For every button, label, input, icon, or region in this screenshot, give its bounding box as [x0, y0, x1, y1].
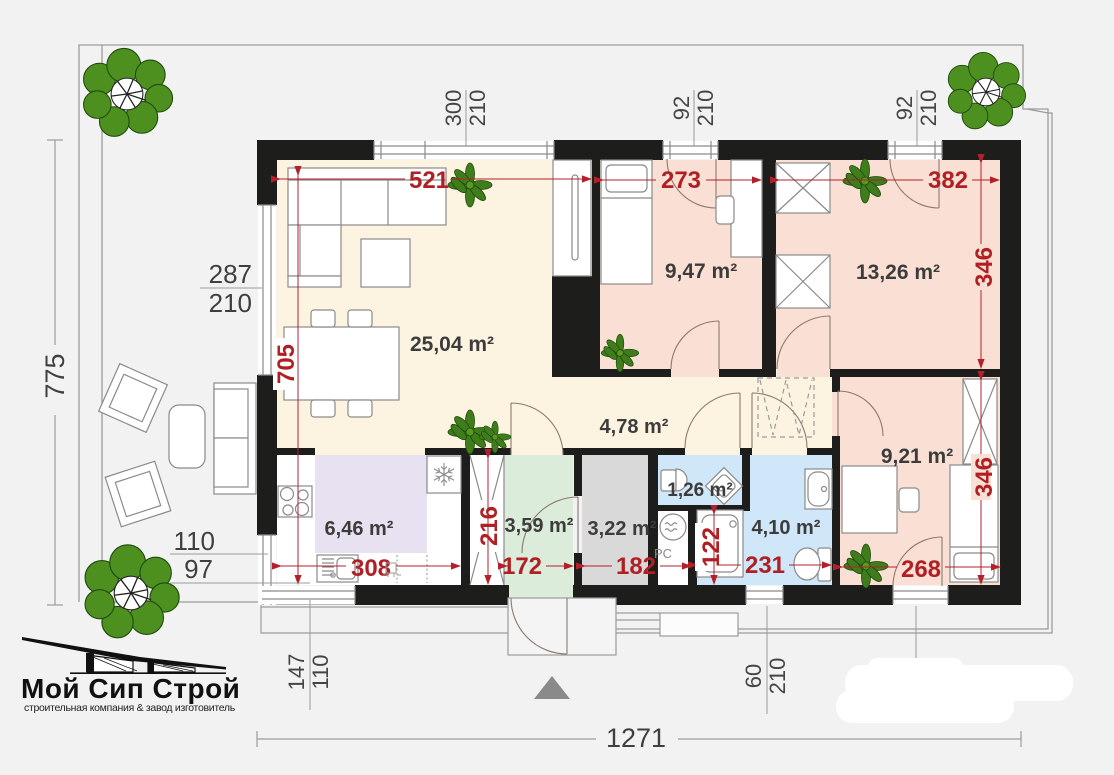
svg-text:PC: PC	[654, 546, 672, 561]
svg-text:110: 110	[174, 526, 215, 556]
svg-text:122: 122	[698, 527, 725, 567]
svg-text:25,04 m²: 25,04 m²	[410, 333, 494, 356]
svg-text:1271: 1271	[606, 723, 666, 753]
svg-text:210: 210	[465, 90, 490, 127]
svg-text:268: 268	[901, 556, 941, 583]
svg-text:9,21 m²: 9,21 m²	[881, 445, 953, 468]
svg-text:273: 273	[661, 167, 701, 194]
svg-text:1,26 m²: 1,26 m²	[667, 480, 732, 501]
svg-text:287: 287	[209, 259, 252, 289]
svg-text:Мой Сип Строй: Мой Сип Строй	[21, 673, 240, 704]
svg-text:705: 705	[273, 344, 300, 384]
svg-text:4,78 m²: 4,78 m²	[600, 416, 669, 438]
svg-text:4,10 m²: 4,10 m²	[752, 517, 821, 539]
svg-text:9,47 m²: 9,47 m²	[665, 260, 737, 283]
svg-text:210: 210	[209, 288, 252, 318]
svg-text:775: 775	[40, 353, 70, 398]
svg-text:60: 60	[741, 664, 766, 688]
svg-text:3,59 m²: 3,59 m²	[505, 515, 574, 537]
svg-text:строительная компания & завод: строительная компания & завод изготовите…	[24, 702, 236, 714]
svg-text:346: 346	[971, 457, 998, 497]
svg-text:110: 110	[308, 654, 333, 689]
svg-text:346: 346	[971, 247, 998, 287]
svg-text:300: 300	[441, 90, 466, 127]
svg-text:6,46 m²: 6,46 m²	[325, 518, 394, 540]
svg-text:210: 210	[765, 658, 790, 695]
svg-text:216: 216	[476, 506, 503, 546]
svg-text:147: 147	[284, 654, 309, 691]
svg-text:172: 172	[502, 553, 542, 580]
svg-text:92: 92	[669, 96, 694, 120]
svg-text:231: 231	[745, 552, 785, 579]
svg-text:382: 382	[928, 167, 968, 194]
svg-text:210: 210	[916, 90, 941, 127]
svg-text:3,22 m²: 3,22 m²	[588, 518, 657, 540]
svg-text:182: 182	[616, 553, 656, 580]
svg-text:308: 308	[351, 555, 391, 582]
svg-text:13,26 m²: 13,26 m²	[856, 261, 940, 284]
svg-text:521: 521	[409, 167, 449, 194]
svg-text:210: 210	[693, 90, 718, 127]
svg-text:92: 92	[892, 96, 917, 120]
svg-text:97: 97	[184, 554, 213, 584]
